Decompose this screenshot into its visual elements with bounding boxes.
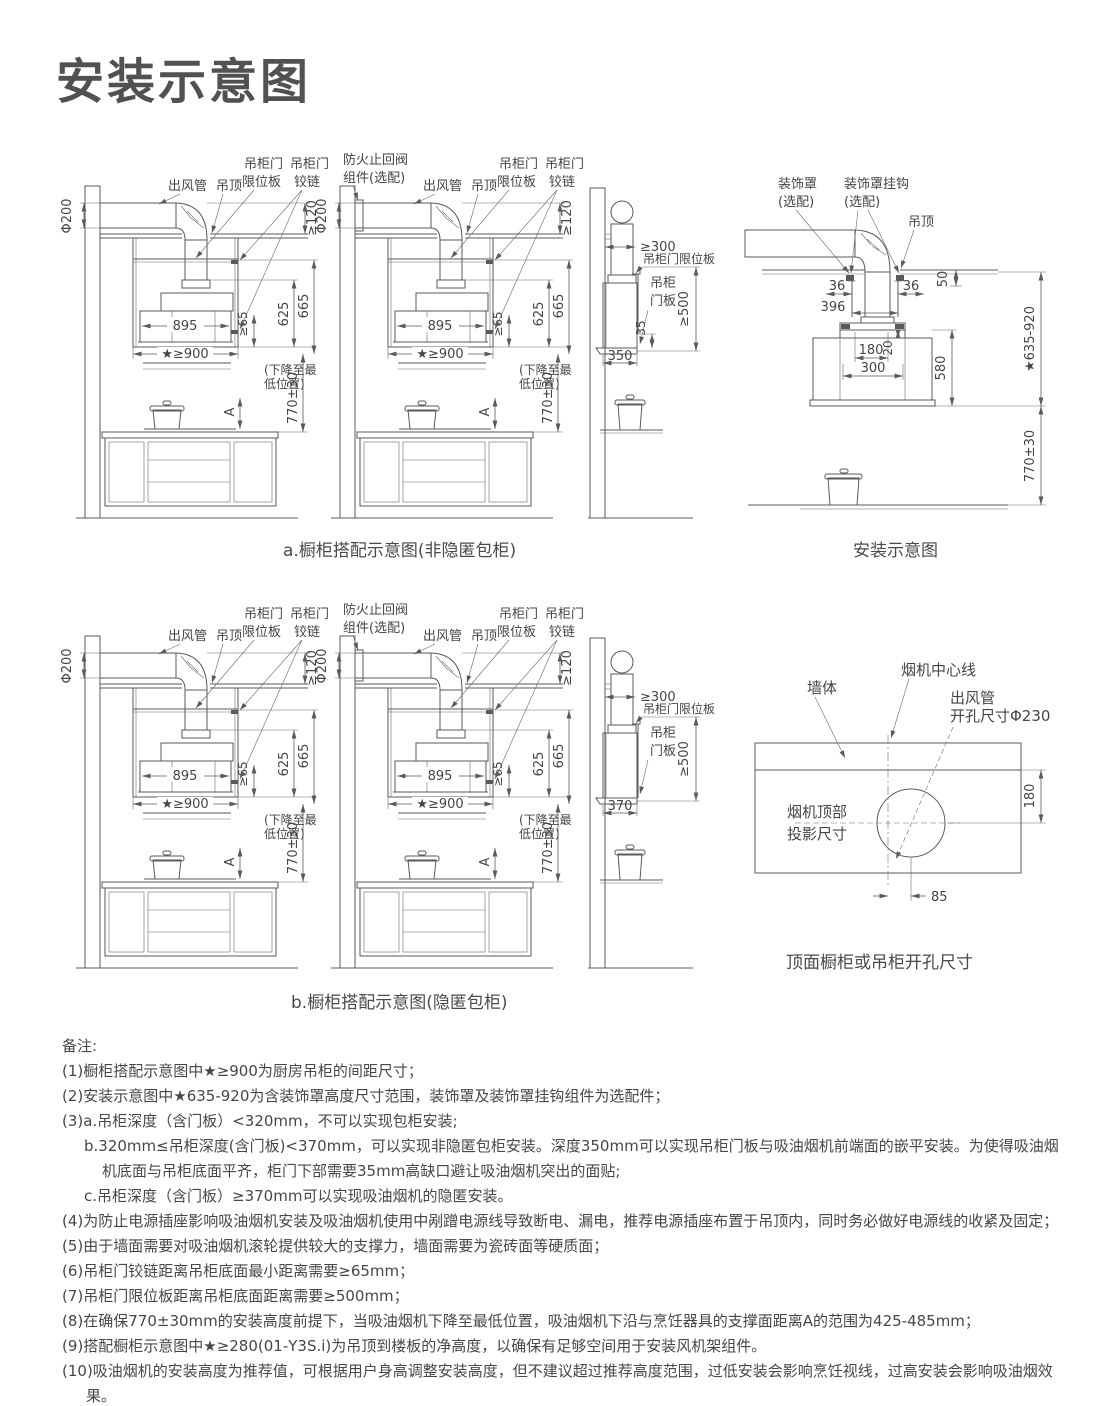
diagram-b2: Φ200 ≥120 895 ≥65 625 665 ★≥900 (下降至最 低位… <box>313 598 598 978</box>
page-title: 安装示意图 <box>56 42 311 112</box>
note-item: (1)橱柜搭配示意图中★≥900为厨房吊柜的间距尺寸； <box>62 1059 1062 1084</box>
manual-page: 安装示意图 <box>0 0 1100 1406</box>
dim-665: 665 <box>297 744 312 769</box>
diagram-a2: Φ200 ≥120 895 ≥65 625 665 ★≥900 (下降至最 低位… <box>313 148 598 528</box>
label-wall: 墙体 <box>807 679 837 697</box>
install-diagram-svg: 36 36 396 50 180 20 300 580 <box>740 160 1090 555</box>
base-cabinet <box>357 882 533 956</box>
dim-depth-350: 350 <box>608 349 633 364</box>
cabinet-match-diagram: Φ200 ≥120 895 ≥65 625 665 ★≥900 (下降至最 低位… <box>313 148 598 528</box>
hood-side-hidden <box>596 718 640 804</box>
outlet-duct <box>355 200 565 288</box>
label-door-limit-2: 限位板 <box>242 175 281 190</box>
part-labels: 出风管 吊顶 吊柜门 限位板 吊柜门 铰链 防火止回阀 组件(选配) <box>343 602 584 779</box>
dim-665: 665 <box>552 294 567 319</box>
dim-a: A <box>478 407 493 416</box>
decorative-cover <box>846 275 904 317</box>
note-item: (8)在确保770±30mm的安装高度前提下，当吸油烟机下降至最低位置，吸油烟机… <box>62 1309 1062 1334</box>
dim-20: 20 <box>881 340 895 355</box>
label-ceiling: 吊顶 <box>216 179 242 194</box>
side-view-a-svg: ≥300 吊柜门限位板 吊柜 门板 ≥500 35 350 <box>588 148 763 528</box>
hinge-mark-top <box>486 710 493 714</box>
outlet-duct <box>745 230 894 323</box>
note-item: (4)为防止电源插座影响吸油烟机安装及吸油烟机使用中剐蹭电源线导致断电、漏电，推… <box>62 1209 1062 1234</box>
vertical-duct <box>605 651 636 733</box>
dim-ge900: ★≥900 <box>161 347 208 362</box>
dim-625: 625 <box>532 752 547 777</box>
dim-770: 770±30 <box>286 822 301 874</box>
label-outlet-duct: 出风管 <box>168 629 207 644</box>
label-projection-1: 烟机顶部 <box>787 803 847 821</box>
dim-625: 625 <box>532 302 547 327</box>
label-door-limit-1: 吊柜门 <box>499 157 538 172</box>
fire-valve-flange <box>355 200 363 231</box>
hinge-mark-top <box>231 710 238 714</box>
label-duct-hole-2: 开孔尺寸Φ230 <box>950 707 1050 725</box>
base-cabinet <box>102 882 278 956</box>
notes-title: 备注: <box>62 1034 1062 1059</box>
note-item: (3)a.吊柜深度（含门板）<320mm，不可以实现包柜安装; <box>62 1109 1062 1134</box>
dimensions: ≥300 吊柜门限位板 吊柜 门板 ≥500 35 350 <box>603 240 715 366</box>
hole-cut-diagram: 烟机中心线 墙体 出风管 开孔尺寸Φ230 烟机顶部 投影尺寸 180 85 <box>745 655 1075 975</box>
diagram-a1: Φ200 ≥120 895 ≥65 625 665 ★≥900 (下降至最 低位… <box>58 148 343 528</box>
dim-36-left: 36 <box>829 279 846 294</box>
dim-50: 50 <box>936 271 951 288</box>
label-fire-valve-1: 防火止回阀 <box>343 602 408 618</box>
dim-ge65: ≥65 <box>491 311 505 336</box>
dim-a: A <box>223 407 238 416</box>
label-cover-hook-2: (选配) <box>844 195 880 210</box>
dim-35: 35 <box>634 320 648 335</box>
note-item: (7)吊柜门限位板距离吊柜底面距离需要≥500mm； <box>62 1284 1062 1309</box>
cabinet-match-diagram: Φ200 ≥120 895 ≥65 625 665 ★≥900 (下降至最 低位… <box>313 598 598 978</box>
caption-row-b: b.橱柜搭配示意图(隐匿包柜) <box>291 988 507 1013</box>
label-fire-valve-1: 防火止回阀 <box>343 152 408 168</box>
note-item: (2)安装示意图中★635-920为含装饰罩高度尺寸范围，装饰罩及装饰罩挂钩组件… <box>62 1084 1062 1109</box>
outlet-duct <box>100 203 310 288</box>
label-door-hinge-1: 吊柜门 <box>545 157 584 172</box>
outlet-duct <box>355 650 565 738</box>
side-view-b: ≥300 吊柜门限位板 吊柜 门板 ≥500 370 <box>588 598 763 978</box>
dim-625: 625 <box>277 302 292 327</box>
dim-ge120: ≥120 <box>560 650 575 686</box>
dim-895: 895 <box>173 319 198 334</box>
cover-hook-left <box>846 275 854 281</box>
dim-ge120: ≥120 <box>560 200 575 236</box>
dim-770: 770±30 <box>541 372 556 424</box>
brick-wall <box>588 638 693 968</box>
label-door-hinge-2: 铰链 <box>549 625 575 640</box>
dim-a: A <box>223 857 238 866</box>
hood-side <box>596 268 640 354</box>
label-projection-2: 投影尺寸 <box>787 825 847 843</box>
dim-ge500: ≥500 <box>677 291 692 327</box>
note-item: c.吊柜深度（含门板）≥370mm可以实现吸油烟机的隐匿安装。 <box>84 1184 1062 1209</box>
label-ceiling: 吊顶 <box>471 629 497 644</box>
base-cabinet <box>357 432 533 506</box>
note-item: b.320mm≤吊柜深度(含门板)<370mm，可以实现非隐匿包柜安装。深度35… <box>84 1134 1062 1184</box>
base-cabinet <box>102 432 278 506</box>
dim-895: 895 <box>173 769 198 784</box>
fire-valve-label: 防火止回阀 组件(选配) <box>343 152 408 200</box>
dim-depth-370: 370 <box>608 799 633 814</box>
ceiling <box>355 684 563 688</box>
ceiling <box>100 234 308 238</box>
label-ceiling: 吊顶 <box>471 179 497 194</box>
fire-valve-flange <box>355 650 363 681</box>
dim-phi200: Φ200 <box>315 198 330 233</box>
dim-ge65: ≥65 <box>236 311 250 336</box>
note-item: (5)由于墙面需要对吸油烟机滚轮提供较大的支撑力，墙面需要为瓷砖面等硬质面； <box>62 1234 1062 1259</box>
pot <box>600 395 663 433</box>
dim-770: 770±30 <box>286 372 301 424</box>
dim-180: 180 <box>859 343 884 358</box>
install-diagram: 36 36 396 50 180 20 300 580 <box>740 160 1090 555</box>
label-cabinet-door-2: 门板 <box>650 294 676 309</box>
dimensions: ≥300 吊柜门限位板 吊柜 门板 ≥500 370 <box>603 690 715 816</box>
dim-580: 580 <box>934 356 949 381</box>
label-outlet-duct: 出风管 <box>423 629 462 644</box>
hinge-mark-top <box>486 260 493 264</box>
caption-install: 安装示意图 <box>853 536 938 561</box>
note-item: (10)吸油烟机的安装高度为推荐值，可根据用户身高调整安装高度，但不建议超过推荐… <box>62 1359 1062 1406</box>
ceiling <box>100 684 308 688</box>
label-door-limit: 吊柜门限位板 <box>643 701 715 716</box>
notes-section: 备注: (1)橱柜搭配示意图中★≥900为厨房吊柜的间距尺寸； (2)安装示意图… <box>62 1034 1062 1406</box>
pot <box>600 845 663 883</box>
label-door-limit-1: 吊柜门 <box>244 157 283 172</box>
cabinet-match-diagram: Φ200 ≥120 895 ≥65 625 665 ★≥900 (下降至最 低位… <box>58 148 343 528</box>
dim-635-920: ★635-920 <box>1023 306 1038 372</box>
fire-valve-label: 防火止回阀 组件(选配) <box>343 602 408 650</box>
label-door-limit: 吊柜门限位板 <box>643 251 715 266</box>
label-cabinet-door-1: 吊柜 <box>650 726 676 741</box>
dim-895: 895 <box>428 319 453 334</box>
label-fire-valve-2: 组件(选配) <box>343 171 405 186</box>
side-view-b-svg: ≥300 吊柜门限位板 吊柜 门板 ≥500 370 <box>588 598 763 978</box>
label-door-hinge-2: 铰链 <box>549 175 575 190</box>
dim-36-right: 36 <box>903 279 920 294</box>
outlet-duct <box>100 653 310 738</box>
dim-180: 180 <box>1023 784 1038 809</box>
dim-ge900: ★≥900 <box>161 797 208 812</box>
part-labels: 出风管 吊顶 吊柜门 限位板 吊柜门 铰链 防火止回阀 组件(选配) <box>343 152 584 329</box>
dim-ge900: ★≥900 <box>416 797 463 812</box>
dim-phi200: Φ200 <box>315 648 330 683</box>
ceiling <box>355 234 563 238</box>
side-view-a: ≥300 吊柜门限位板 吊柜 门板 ≥500 35 350 <box>588 148 763 528</box>
dim-895: 895 <box>428 769 453 784</box>
dim-ge900: ★≥900 <box>416 347 463 362</box>
label-outlet-duct: 出风管 <box>423 179 462 194</box>
counter-and-pot <box>748 469 1008 509</box>
vertical-duct <box>605 201 636 283</box>
label-door-limit-2: 限位板 <box>497 625 536 640</box>
label-cover-1: 装饰罩 <box>778 177 817 192</box>
dim-770: 770±30 <box>541 822 556 874</box>
label-ceiling: 吊顶 <box>216 629 242 644</box>
dim-a: A <box>478 857 493 866</box>
dim-396: 396 <box>821 300 846 315</box>
dim-ge65: ≥65 <box>491 761 505 786</box>
dim-300: 300 <box>861 361 886 376</box>
dim-85: 85 <box>931 890 948 905</box>
dim-ge65: ≥65 <box>236 761 250 786</box>
caption-row-a: a.橱柜搭配示意图(非隐匿包柜) <box>283 536 516 561</box>
note-item: (6)吊柜门铰链距离吊柜底面最小距离需要≥65mm； <box>62 1259 1062 1284</box>
label-outlet-duct: 出风管 <box>168 179 207 194</box>
dimensions: 180 85 <box>873 770 1046 905</box>
dim-665: 665 <box>297 294 312 319</box>
cabinet-match-diagram: Φ200 ≥120 895 ≥65 625 665 ★≥900 (下降至最 低位… <box>58 598 343 978</box>
label-door-limit-2: 限位板 <box>242 625 281 640</box>
label-door-limit-1: 吊柜门 <box>244 607 283 622</box>
label-cover-hook-1: 装饰罩挂钩 <box>844 177 909 192</box>
label-ceiling: 吊顶 <box>908 215 934 230</box>
dim-665: 665 <box>552 744 567 769</box>
dim-625: 625 <box>277 752 292 777</box>
hole-cut-svg: 烟机中心线 墙体 出风管 开孔尺寸Φ230 烟机顶部 投影尺寸 180 85 <box>745 655 1075 975</box>
label-center-line: 烟机中心线 <box>901 661 976 679</box>
label-fire-valve-2: 组件(选配) <box>343 621 405 636</box>
dim-ge500: ≥500 <box>677 741 692 777</box>
label-door-limit-1: 吊柜门 <box>499 607 538 622</box>
part-labels: 烟机中心线 墙体 出风管 开孔尺寸Φ230 烟机顶部 投影尺寸 <box>787 661 1050 843</box>
hinge-mark-top <box>231 260 238 264</box>
diagram-b1: Φ200 ≥120 895 ≥65 625 665 ★≥900 (下降至最 低位… <box>58 598 343 978</box>
dim-770: 770±30 <box>1023 430 1038 482</box>
label-duct-hole-1: 出风管 <box>950 689 995 707</box>
caption-hole-cut: 顶面橱柜或吊柜开孔尺寸 <box>786 948 973 973</box>
part-labels: 装饰罩 (选配) 装饰罩挂钩 (选配) 吊顶 <box>778 177 934 273</box>
label-cabinet-door-1: 吊柜 <box>650 276 676 291</box>
dim-phi200: Φ200 <box>60 648 75 683</box>
brick-wall <box>588 188 693 518</box>
label-door-hinge-1: 吊柜门 <box>545 607 584 622</box>
dimensions: 36 36 396 50 180 20 300 580 <box>821 270 1046 505</box>
note-item: (9)搭配橱柜示意图中★≥280(01-Y3S.i)为吊顶到楼板的净高度，以确保… <box>62 1334 1062 1359</box>
dim-phi200: Φ200 <box>60 198 75 233</box>
label-cover-2: (选配) <box>778 195 814 210</box>
label-cabinet-door-2: 门板 <box>650 744 676 759</box>
label-door-limit-2: 限位板 <box>497 175 536 190</box>
